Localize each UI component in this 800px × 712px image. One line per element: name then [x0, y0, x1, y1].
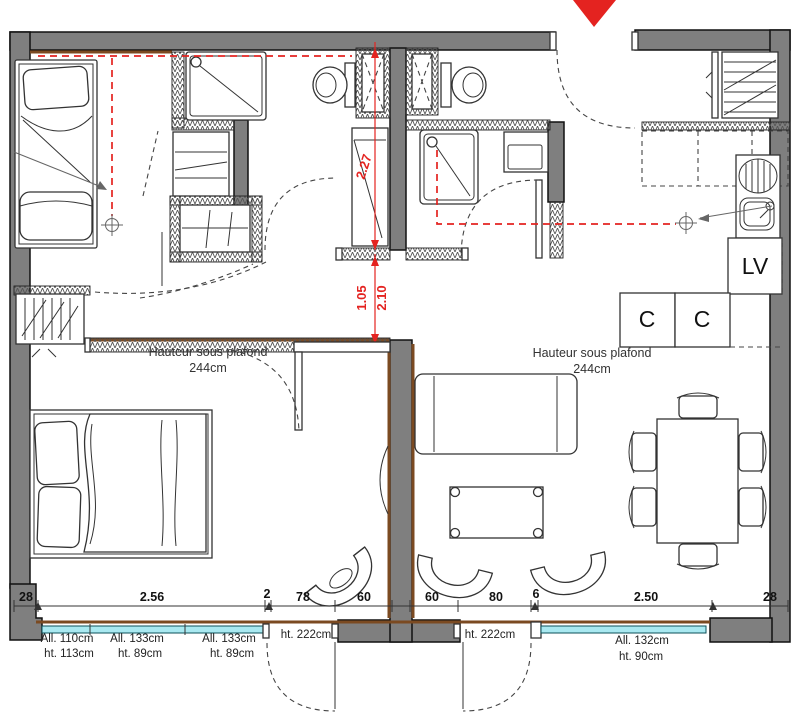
armchair-left: [411, 555, 493, 605]
window-1a-height: ht. 113cm: [44, 648, 94, 660]
toilet-right: [441, 63, 486, 107]
pillar-entry-hall: [548, 122, 564, 202]
top-wall-right: [635, 30, 790, 50]
bedroom1-door-swing: [95, 262, 266, 293]
partition-bath1-bottom: [340, 248, 390, 260]
window-right-glazing: [541, 626, 706, 633]
target-marker-left: [101, 214, 123, 236]
vanity-left: [352, 128, 388, 246]
blanket-roll: [20, 192, 92, 240]
tv-panel: [380, 446, 388, 514]
sliding-door-leaf: [295, 352, 302, 430]
partition-storage-bottom: [170, 252, 262, 262]
svg-text:Hauteur sous plafond: Hauteur sous plafond: [533, 346, 652, 360]
door-jamb: [336, 248, 342, 260]
window-2-allege: All. 132cm: [615, 635, 669, 647]
door-jamb: [332, 624, 338, 638]
dining-table: [657, 419, 738, 543]
shower-drain: [427, 137, 437, 147]
dim-opening-width: 1.05: [354, 285, 369, 310]
partition-bath2-top: [406, 120, 550, 130]
partition-storage-top: [170, 196, 262, 205]
dim-3: 78: [296, 590, 310, 604]
partition-storage-left: [170, 196, 180, 262]
window-1c-height: ht. 89cm: [210, 648, 254, 660]
dining-chair-left-2: [629, 486, 656, 528]
entrance-jamb-left: [550, 32, 556, 50]
cistern: [441, 63, 451, 107]
duvet: [84, 414, 206, 552]
bottom-right-corner-wall: [710, 618, 772, 642]
shower-left: [186, 52, 266, 120]
dining-chair-right-2: [739, 486, 766, 528]
dining-chair-top: [677, 393, 719, 418]
french-door-right-swing: [463, 643, 531, 711]
dim-6: 80: [489, 590, 503, 604]
door-jamb: [531, 622, 541, 638]
dim-7: 6: [533, 587, 540, 601]
window-1a-allege: All. 110cm: [41, 633, 94, 645]
closet-sliding-panel: [712, 52, 718, 118]
svg-text:244cm: 244cm: [189, 361, 227, 375]
pillow: [37, 486, 81, 547]
wardrobe-swing-marks: [32, 349, 56, 357]
entrance-door-swing: [557, 50, 635, 128]
dim-4: 60: [357, 590, 371, 604]
svg-text:Hauteur sous plafond: Hauteur sous plafond: [149, 345, 268, 359]
dressing-cabinet-lower: [180, 205, 250, 252]
toilet-left: [313, 63, 355, 107]
pillar-bedroom1-storage: [234, 120, 248, 206]
svg-text:244cm: 244cm: [573, 362, 611, 376]
dim-0: 28: [19, 590, 33, 604]
dining-chair-bottom: [677, 544, 719, 569]
cabinet-label-2: C: [694, 306, 711, 332]
french-door-left-swing: [267, 643, 335, 711]
dim-5: 60: [425, 590, 439, 604]
bath1-door-swing: [265, 178, 337, 250]
dishwasher-label: LV: [742, 253, 769, 279]
duct-left: [356, 48, 390, 118]
arrow-head: [698, 214, 709, 222]
dim-9: 28: [763, 590, 777, 604]
target-marker-right: [675, 212, 697, 234]
storage-door-swing: [140, 264, 253, 298]
cabinet-label-1: C: [639, 306, 656, 332]
bath2-door-leaf: [536, 180, 542, 258]
pillow: [34, 421, 79, 485]
sofa: [415, 374, 577, 454]
dining-set: [629, 393, 766, 569]
pillow: [23, 66, 90, 110]
dim-opening-height: 2.10: [374, 285, 389, 310]
door-right-height: ht. 222cm: [465, 629, 516, 641]
dishwasher-box: LV: [728, 238, 782, 294]
duct-right: [406, 48, 438, 115]
dressing-cabinet-upper: [173, 132, 229, 196]
partition-kitchen-top: [642, 122, 790, 130]
single-bed: [15, 60, 97, 248]
kitchen-sink: [736, 155, 780, 238]
window-1b-height: ht. 89cm: [118, 648, 162, 660]
shower-drain: [191, 57, 201, 67]
window-1c-allege: All. 133cm: [202, 633, 256, 645]
door-left-height: ht. 222cm: [281, 629, 332, 641]
partition-shower1-left: [172, 52, 184, 128]
ceiling-label-left: Hauteur sous plafond 244cm: [149, 345, 268, 375]
floor-plan-svg: LV C C 2.27 1.05 2.1: [0, 0, 800, 712]
tall-storage-unit: [706, 52, 778, 118]
cabinet-door-swing: [143, 131, 158, 196]
center-wall-upper: [390, 48, 406, 250]
window-left-glazing: [42, 626, 263, 633]
door-jamb: [462, 248, 468, 260]
door-jamb: [454, 624, 460, 638]
ceiling-label-right: Hauteur sous plafond 244cm: [533, 346, 652, 376]
partition-bath2-bottom: [406, 248, 466, 260]
door-jamb: [85, 338, 90, 352]
dining-chair-right-1: [739, 431, 766, 473]
dim-2: 2: [264, 587, 271, 601]
bedroom2-swing: [231, 350, 299, 432]
washbasin-right: [504, 132, 548, 172]
dining-chair-left-1: [629, 431, 656, 473]
entrance-jamb-right: [632, 32, 638, 50]
door-jamb: [263, 624, 269, 638]
top-wall-left: [10, 32, 555, 50]
shower-right: [420, 130, 478, 204]
accessibility-guides-right: [437, 150, 772, 234]
sliding-door-bedroom2: [294, 342, 390, 430]
armchair-right: [531, 552, 613, 602]
partition-hall-below-pillar: [550, 202, 563, 258]
double-bed: [30, 410, 212, 558]
entrance-arrow: [573, 0, 616, 27]
window-1b-allege: All. 133cm: [110, 633, 164, 645]
coffee-table: [450, 487, 543, 538]
center-wall-lower: [390, 340, 412, 642]
window-2-height: ht. 90cm: [619, 651, 663, 663]
bedroom2-armchair: [305, 547, 385, 620]
partition-storage-right: [252, 196, 262, 262]
dim-8: 2.50: [634, 590, 658, 604]
dim-1: 2.56: [140, 590, 164, 604]
